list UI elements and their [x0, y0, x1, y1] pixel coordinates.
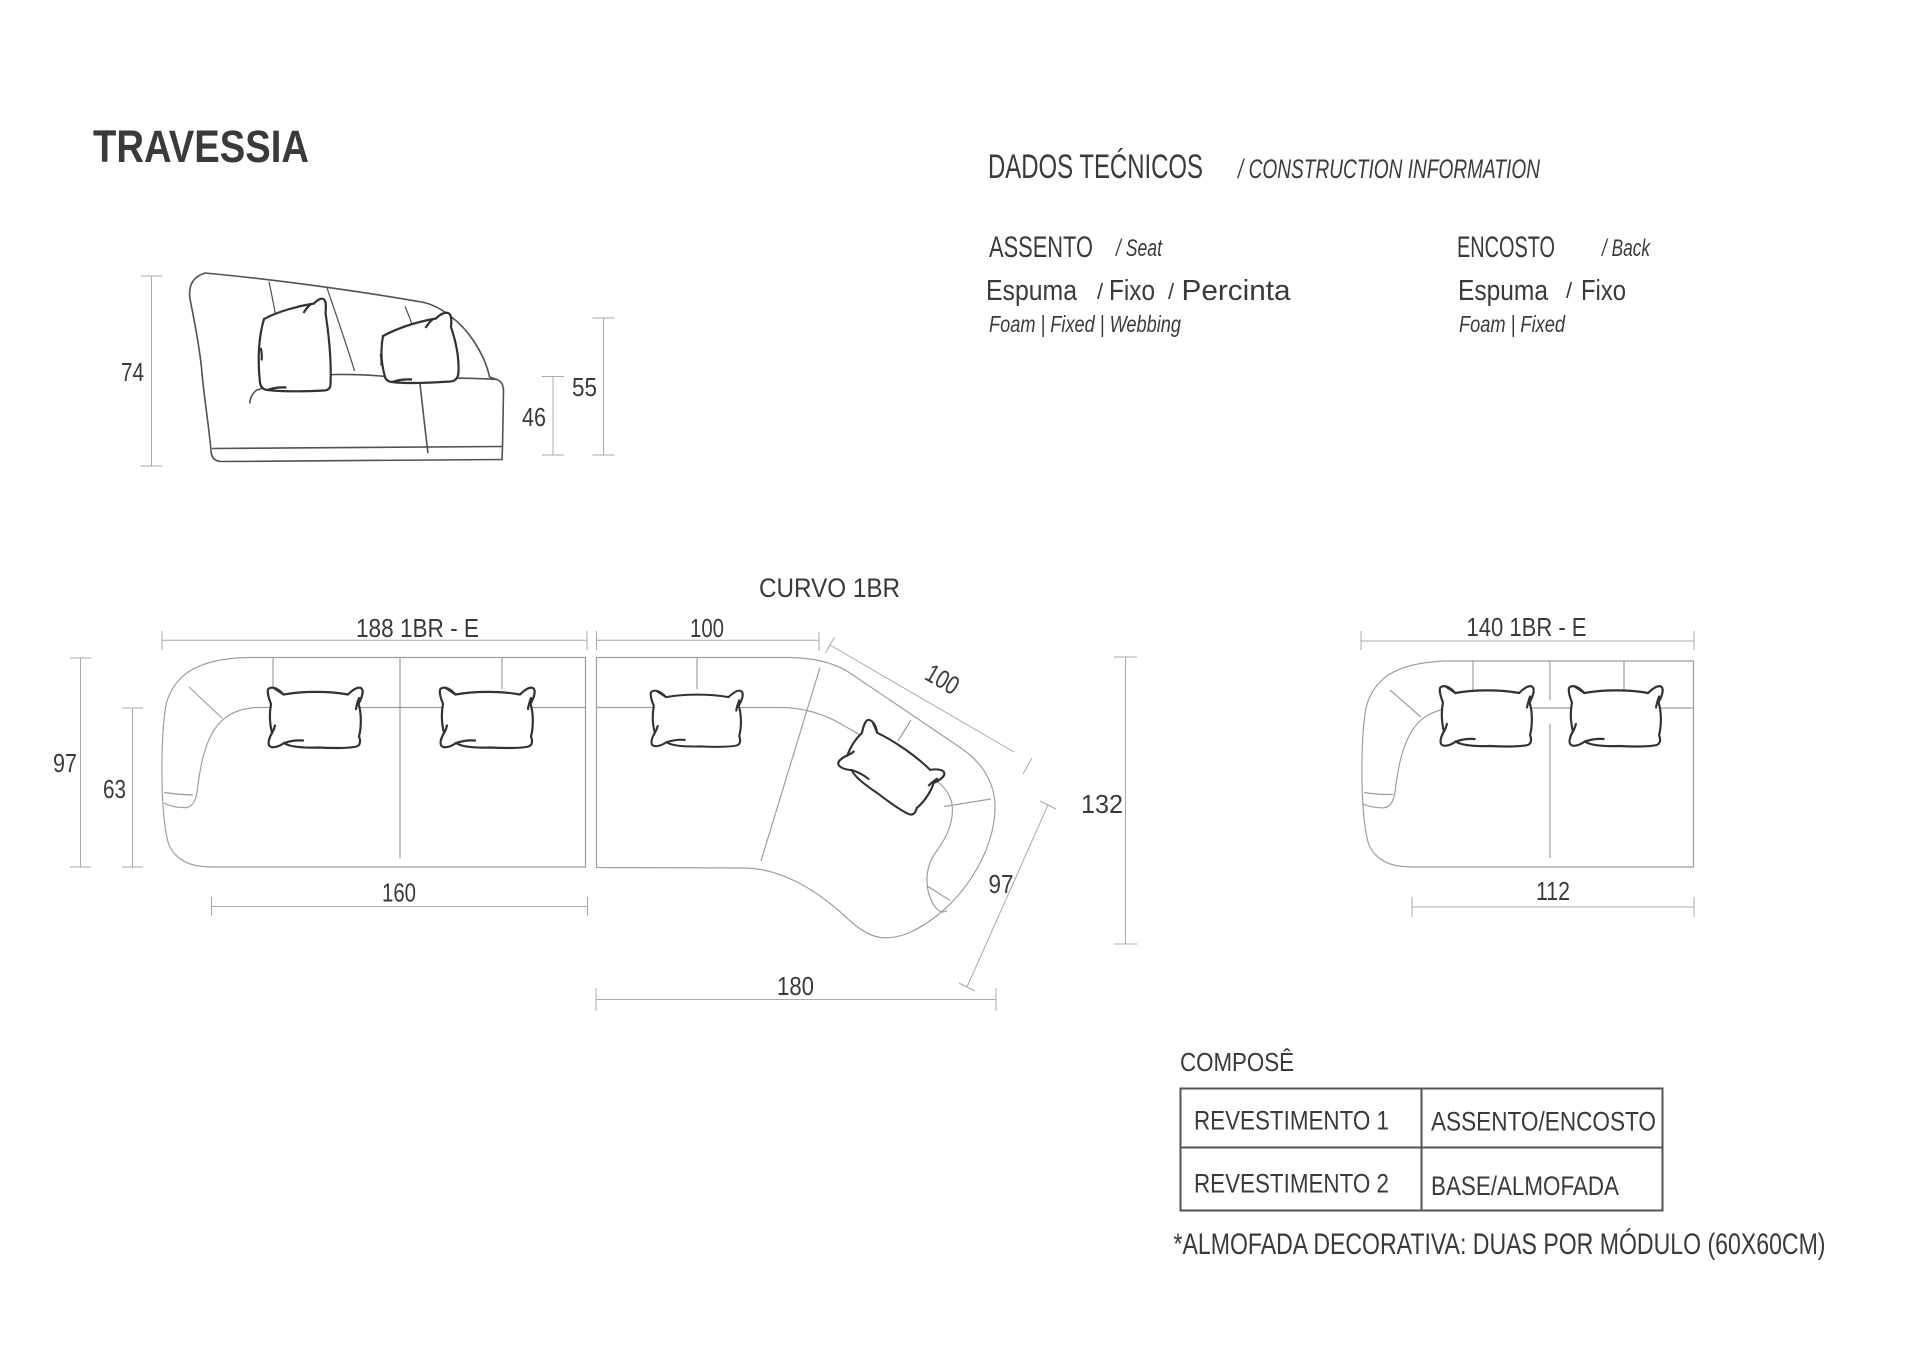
svg-text:160: 160 [382, 878, 416, 908]
svg-text:COMPOSÊ: COMPOSÊ [1180, 1047, 1294, 1077]
svg-text:REVESTIMENTO 2: REVESTIMENTO 2 [1194, 1169, 1389, 1199]
svg-text:ASSENTO/ENCOSTO: ASSENTO/ENCOSTO [1431, 1107, 1656, 1137]
svg-text:DADOS TEĆNICOS: DADOS TEĆNICOS [988, 148, 1203, 186]
svg-text:BASE/ALMOFADA: BASE/ALMOFADA [1431, 1171, 1619, 1201]
svg-text:132: 132 [1081, 789, 1123, 819]
svg-text:112: 112 [1536, 876, 1570, 906]
svg-text:Percinta: Percinta [1182, 275, 1292, 307]
svg-text:/ Seat: / Seat [1115, 235, 1163, 262]
svg-text:97: 97 [989, 869, 1014, 899]
svg-text:/ CONSTRUCTION INFORMATION: / CONSTRUCTION INFORMATION [1237, 154, 1541, 184]
svg-text:180: 180 [777, 971, 814, 1001]
svg-text:/: / [1097, 279, 1104, 304]
svg-text:ASSENTO: ASSENTO [989, 231, 1093, 264]
svg-text:74: 74 [121, 357, 144, 387]
svg-text:/: / [1168, 279, 1175, 304]
svg-text:Fixo: Fixo [1109, 275, 1155, 307]
svg-text:188 1BR - E: 188 1BR - E [356, 613, 479, 643]
svg-text:Espuma: Espuma [1458, 275, 1549, 307]
svg-text:*ALMOFADA DECORATIVA: DUAS POR: *ALMOFADA DECORATIVA: DUAS POR MÓDULO (6… [1174, 1228, 1826, 1261]
svg-text:/ Back: / Back [1601, 235, 1652, 262]
svg-text:97: 97 [53, 748, 77, 778]
svg-text:100: 100 [690, 613, 724, 643]
svg-text:63: 63 [103, 774, 126, 804]
svg-text:REVESTIMENTO 1: REVESTIMENTO 1 [1194, 1106, 1389, 1136]
svg-text:140 1BR - E: 140 1BR - E [1467, 612, 1587, 642]
svg-text:Foam | Fixed | Webbing: Foam | Fixed | Webbing [989, 311, 1181, 337]
svg-text:Foam | Fixed: Foam | Fixed [1459, 311, 1566, 337]
svg-text:TRAVESSIA: TRAVESSIA [93, 121, 309, 172]
svg-text:CURVO 1BR: CURVO 1BR [759, 573, 900, 603]
svg-text:55: 55 [572, 372, 597, 402]
svg-text:Espuma: Espuma [986, 275, 1078, 307]
svg-text:46: 46 [522, 402, 546, 432]
svg-text:/: / [1566, 278, 1573, 303]
svg-text:ENCOSTO: ENCOSTO [1457, 231, 1555, 264]
svg-text:Fixo: Fixo [1581, 275, 1626, 307]
